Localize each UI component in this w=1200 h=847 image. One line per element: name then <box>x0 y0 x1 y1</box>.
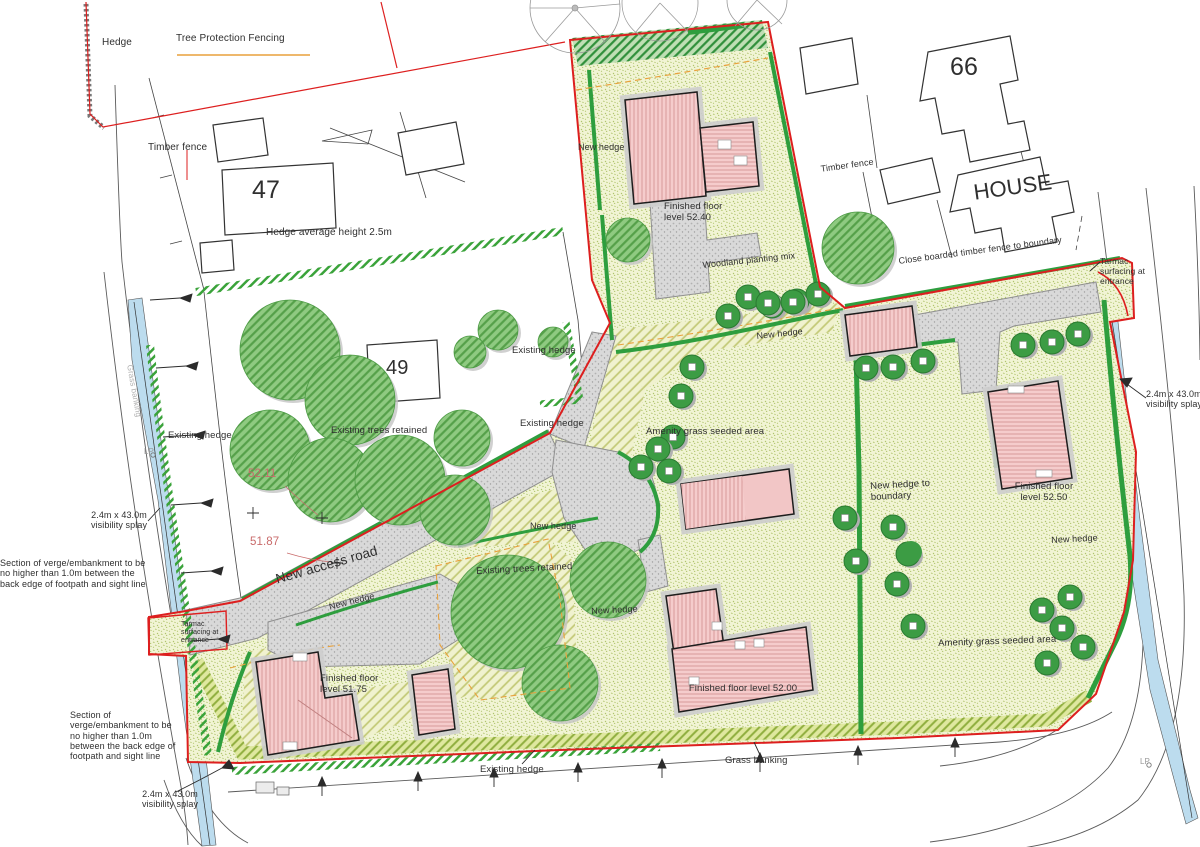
existing-tree-canopy <box>822 212 894 284</box>
existing-tree-canopy <box>434 410 490 466</box>
existing-tree-canopy <box>454 336 486 368</box>
plot1-house <box>625 92 706 204</box>
existing-hedge-left <box>150 345 208 755</box>
site-plan: HedgeTree Protection FencingTimber fence… <box>0 0 1200 847</box>
new-tree <box>900 541 922 563</box>
plot2-garage <box>412 669 455 735</box>
site-plan-drawing <box>0 0 1200 847</box>
existing-tree-canopy <box>606 218 650 262</box>
building-66-outline <box>920 36 1030 162</box>
existing-hedge-diagonal <box>196 231 563 292</box>
existing-tree-canopy <box>570 542 646 618</box>
plot4-house <box>988 381 1072 489</box>
existing-tree-canopy <box>538 327 568 357</box>
building-47-outline <box>222 163 336 235</box>
existing-tree-canopy <box>522 645 598 721</box>
plot4-garage <box>845 306 917 356</box>
existing-tree-canopy <box>305 355 395 445</box>
building-house-outline <box>950 157 1074 252</box>
